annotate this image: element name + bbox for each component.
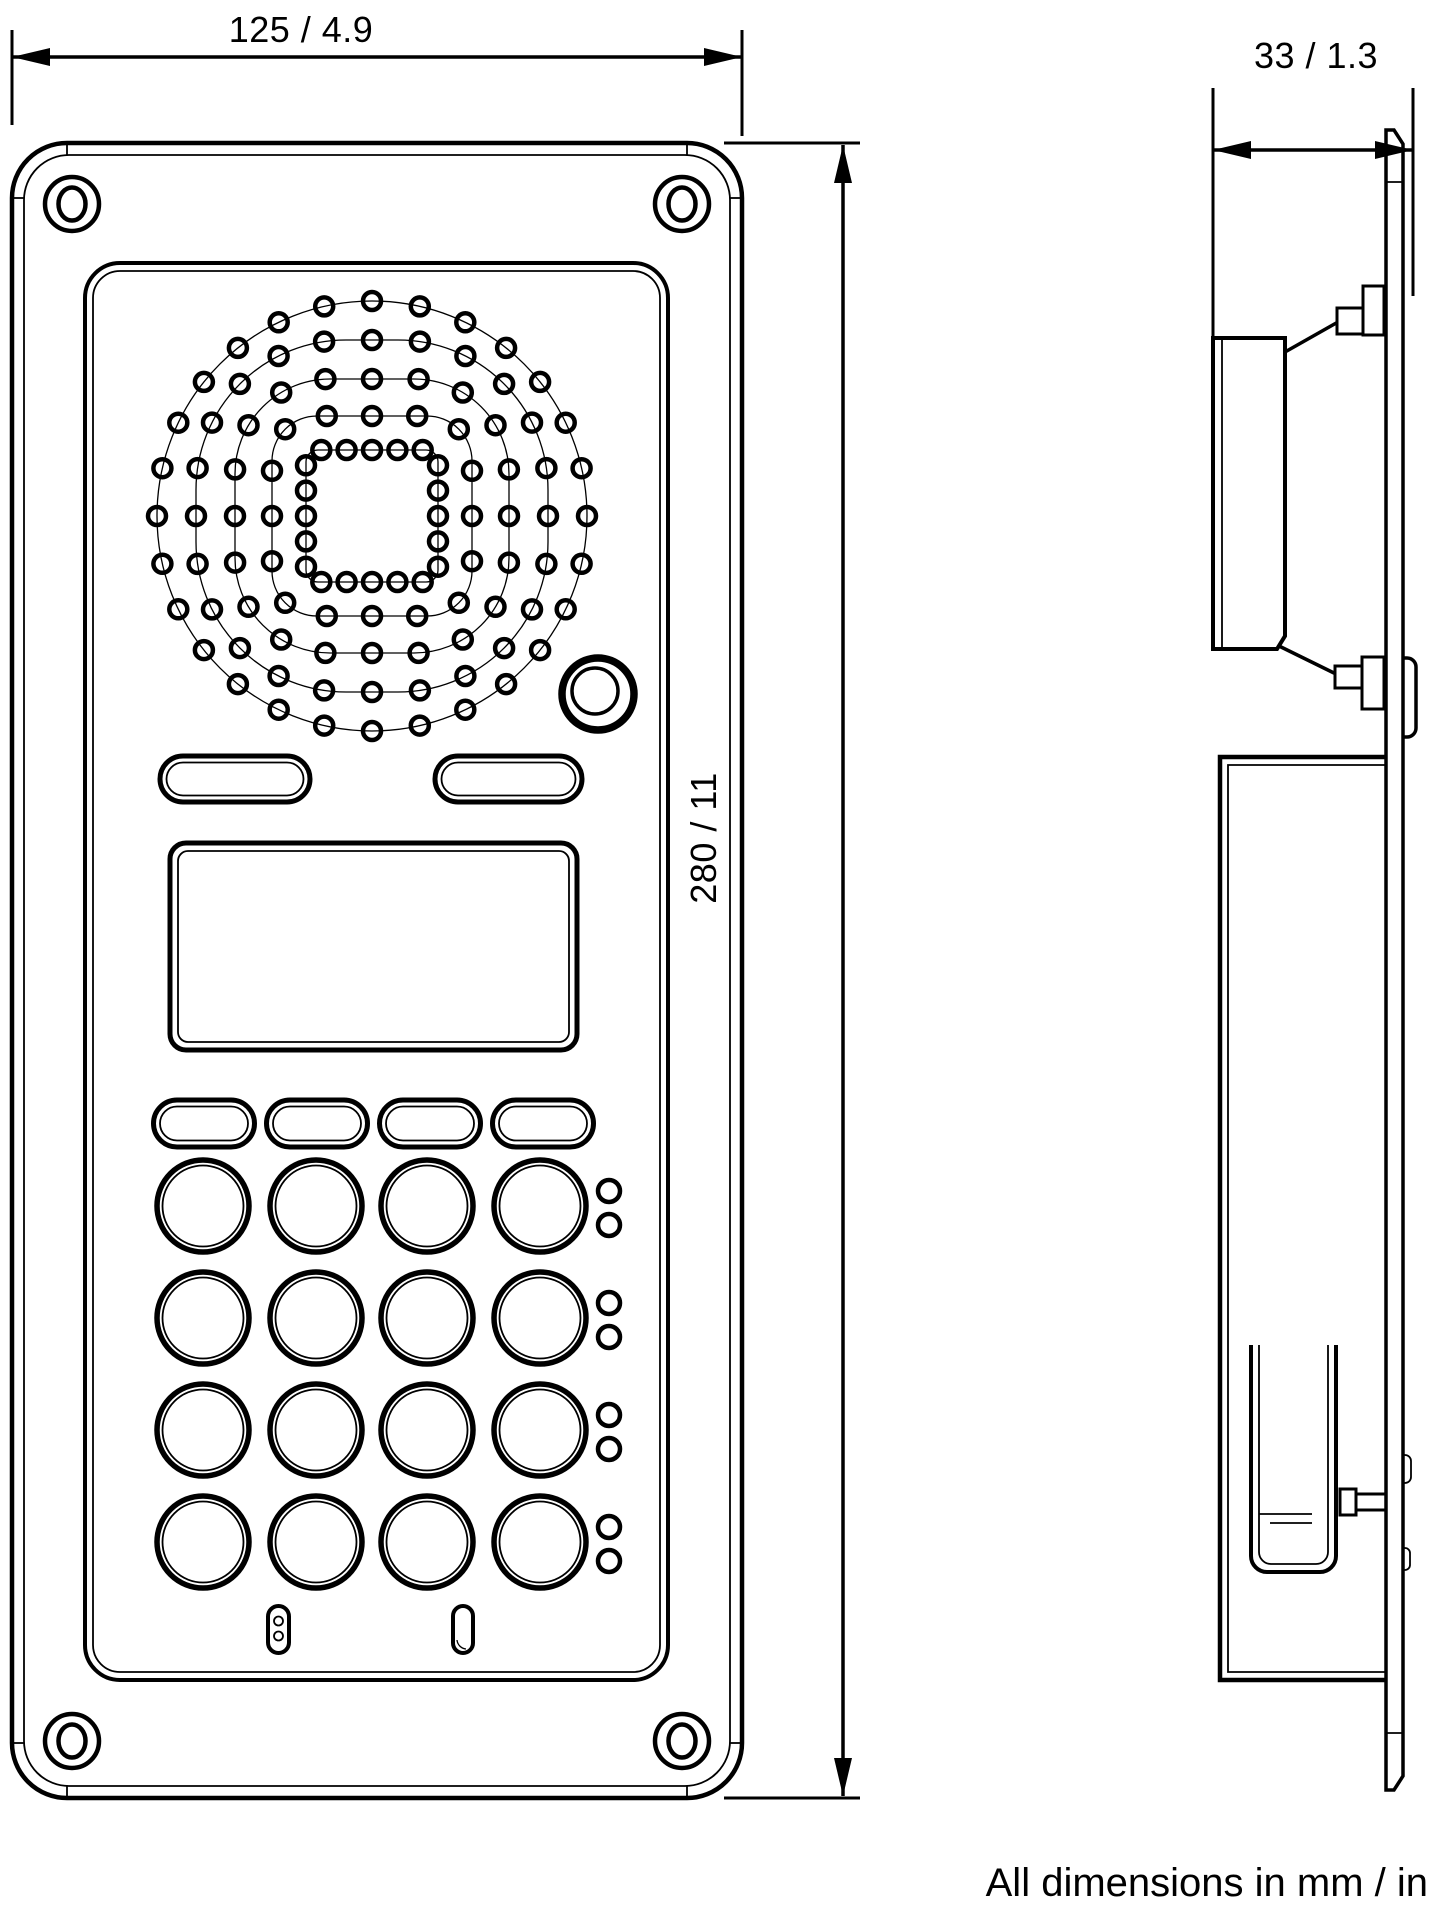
screw-hole <box>655 177 709 231</box>
speaker-cone-top <box>1285 322 1338 352</box>
front-view <box>12 143 742 1798</box>
lens-bump <box>1403 658 1416 737</box>
camera-lens <box>562 658 634 730</box>
screw-hole <box>655 1714 709 1768</box>
arrowhead-left <box>1213 141 1251 159</box>
screw-hole <box>45 1714 99 1768</box>
arrowhead-right <box>704 48 742 66</box>
speaker-box <box>1213 322 1338 674</box>
speaker-cone-bottom <box>1279 646 1336 674</box>
front-panel-outline <box>12 143 742 1798</box>
height-dimension-label: 280 / 11 <box>683 772 724 903</box>
technical-drawing: 125 / 4.9 280 / 11 33 / 1.3 All dimensio… <box>0 0 1432 1915</box>
units-note: All dimensions in mm / in <box>986 1861 1428 1905</box>
depth-dimension-label: 33 / 1.3 <box>1254 35 1378 76</box>
arrowhead-bottom <box>834 1758 852 1796</box>
front-plate-edge <box>1386 130 1403 1790</box>
arrowhead-top <box>834 145 852 183</box>
screw-hole <box>45 177 99 231</box>
width-dimension-label: 125 / 4.9 <box>229 9 374 50</box>
side-view <box>1213 130 1416 1790</box>
dimension-width: 125 / 4.9 <box>12 9 742 136</box>
arrowhead-left <box>12 48 50 66</box>
